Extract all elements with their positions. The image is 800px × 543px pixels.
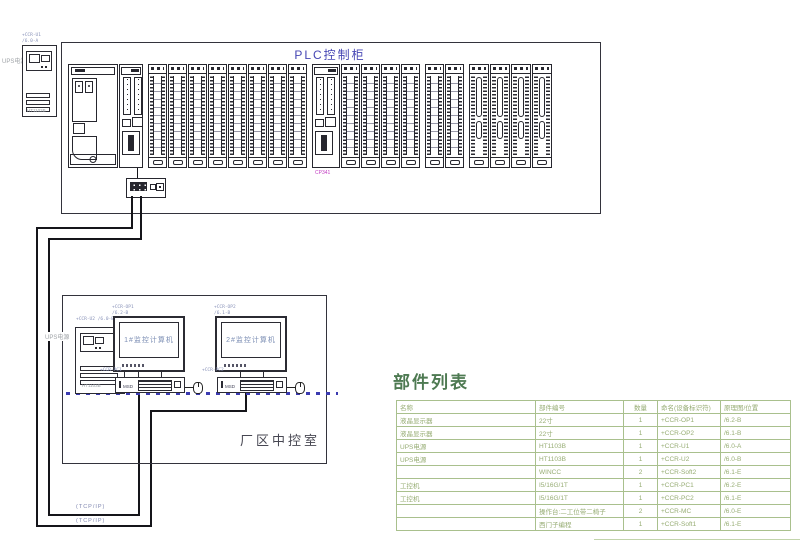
table-cell: 2 [624, 466, 658, 479]
monitor-2: 2#监控计算机 [215, 316, 287, 372]
psu-bottom-strip [70, 154, 116, 165]
monitor-1-name: 1#监控计算机 [124, 335, 174, 345]
rack-gap [421, 64, 424, 168]
table-cell: 22寸 [536, 414, 624, 427]
table-cell: +CCR-MC [658, 505, 721, 518]
io-module [361, 64, 380, 168]
module-terminals [169, 74, 186, 157]
network-connector [126, 178, 166, 198]
cpu-drop-line [137, 168, 138, 178]
psu-module [68, 64, 118, 168]
ups-room-label: UPS电源 [45, 332, 69, 341]
module-footer [289, 157, 306, 167]
mouse-1-icon [193, 382, 203, 394]
pc-led [221, 381, 223, 388]
cpu-slots [316, 77, 335, 115]
table-row: WINCC2+CCR-Soft2/6.1-E [397, 466, 791, 479]
an-module [511, 64, 531, 168]
table-cell: 1 [624, 414, 658, 427]
module-terminals [249, 74, 266, 157]
table-cell: I5/16G/1T [536, 492, 624, 505]
ups-main-model: HT1103B [27, 108, 46, 113]
module-footer [189, 157, 206, 167]
mouse-2-wire [287, 387, 295, 388]
table-row: UPS电源HT1103B1+CCR-U1/6.0-A [397, 440, 791, 453]
cpu-module [119, 64, 143, 168]
ups-display-panel [26, 51, 52, 71]
cable-inner-seg [48, 238, 142, 240]
module-terminals [470, 74, 488, 157]
table-cell: 1 [624, 492, 658, 505]
table-cell: 2 [624, 505, 658, 518]
rack-gap [465, 64, 468, 168]
cpu-square [315, 119, 324, 127]
io-module [381, 64, 400, 168]
ups-room-model: HT1103B [82, 383, 101, 388]
pc-port [276, 381, 283, 388]
ups-main-annotation: +CCR-U1 /6.0-A [22, 33, 41, 44]
table-header-cell: 数量 [624, 401, 658, 414]
table-cell [397, 466, 536, 479]
module-terminals [229, 74, 246, 157]
table-cell [397, 505, 536, 518]
table-header-cell: 原理图/位置 [721, 401, 791, 414]
table-cell: 操作台:二工位带二椅子 [536, 505, 624, 518]
module-header [269, 65, 286, 74]
pc-port [174, 381, 181, 388]
module-terminals [289, 74, 306, 157]
table-cell: /6.1-B [721, 427, 791, 440]
cable-outer-seg [131, 196, 133, 228]
pc-led [119, 381, 121, 388]
module-header [249, 65, 266, 74]
module-footer [382, 157, 399, 167]
module-terminals [491, 74, 509, 157]
module-header [229, 65, 246, 74]
io-module [425, 64, 444, 168]
table-cell: +CCR-OP1 [658, 414, 721, 427]
module-header [402, 65, 419, 74]
monitor-1-tag: +CCR-OP1 [112, 305, 134, 310]
cp-module: CP341 [312, 64, 340, 168]
table-cell: /6.0-A [721, 440, 791, 453]
ups-room-loc: /6.0-B [98, 317, 114, 322]
module-terminals [209, 74, 226, 157]
table-cell: 22寸 [536, 427, 624, 440]
plc-rack: CP341 [68, 64, 553, 168]
an-module [490, 64, 510, 168]
module-footer [209, 157, 226, 167]
module-footer [269, 157, 286, 167]
table-cell: +CCR-Soft1 [658, 518, 721, 531]
an-module [469, 64, 489, 168]
io-module [341, 64, 360, 168]
tcpip-label-1: (TCP/IP) [76, 504, 105, 510]
table-cell [397, 518, 536, 531]
ups-room-tag: +CCR-U2 [76, 317, 95, 322]
table-cell: /6.0-B [721, 453, 791, 466]
module-header [289, 65, 306, 74]
cpu-square [122, 119, 131, 127]
module-header [342, 65, 359, 74]
io-module [148, 64, 167, 168]
io-module [268, 64, 287, 168]
monitor-2-tag: +CCR-OP2 [214, 305, 236, 310]
module-header [382, 65, 399, 74]
module-header [533, 65, 551, 74]
table-cell: 西门子编程 [536, 518, 624, 531]
table-header-cell: 命名(设备标识符) [658, 401, 721, 414]
rack-gap [308, 64, 311, 168]
an-module [532, 64, 552, 168]
module-footer [169, 157, 186, 167]
pc-2: MSD [217, 377, 287, 393]
module-footer [533, 157, 551, 167]
table-header-cell: 部件编号 [536, 401, 624, 414]
table-cell: 1 [624, 518, 658, 531]
cpu-square [325, 117, 336, 127]
table-row: 液晶显示器22寸1+CCR-OP2/6.1-B [397, 427, 791, 440]
module-terminals [362, 74, 379, 157]
tcpip-label-2: (TCP/IP) [76, 518, 105, 524]
cp-module-label: CP341 [315, 170, 330, 176]
table-cell: HT1103B [536, 440, 624, 453]
module-terminals [512, 74, 530, 157]
module-footer [342, 157, 359, 167]
table-cell: +CCR-U2 [658, 453, 721, 466]
io-module [168, 64, 187, 168]
module-footer [402, 157, 419, 167]
table-row: 液晶显示器22寸1+CCR-OP1/6.2-B [397, 414, 791, 427]
table-cell: UPS电源 [397, 453, 536, 466]
table-cell: /6.2-B [721, 414, 791, 427]
cpu-slots [123, 77, 142, 115]
table-cell: HT1103B [536, 453, 624, 466]
module-terminals [269, 74, 286, 157]
cpu-connector [122, 131, 140, 155]
module-header [362, 65, 379, 74]
table-row: UPS电源HT1103B1+CCR-U2/6.0-B [397, 453, 791, 466]
table-cell: /6.1-E [721, 492, 791, 505]
table-cell: +CCR-PC1 [658, 479, 721, 492]
table-cell: /6.1-E [721, 466, 791, 479]
cable-outer-seg [36, 227, 38, 527]
io-module [228, 64, 247, 168]
ups-main-loc: /6.0-A [22, 39, 38, 44]
pc-badge: MSD [123, 384, 133, 389]
table-row: 西门子编程1+CCR-Soft1/6.1-E [397, 518, 791, 531]
drawing-canvas: PLC控制柜 CP341 +CCR-U1 /6.0-A UPS电源 HT1103… [0, 0, 800, 543]
cpu-square [132, 117, 143, 127]
table-cell: WINCC [536, 466, 624, 479]
monitor-1: 1#监控计算机 [113, 316, 185, 372]
module-header [426, 65, 443, 74]
module-header [470, 65, 488, 74]
psu-square [73, 123, 85, 134]
pc-1: MSD [115, 377, 185, 393]
table-cell: UPS电源 [397, 440, 536, 453]
io-module [188, 64, 207, 168]
table-cell: 工控机 [397, 492, 536, 505]
cable-inner-seg [48, 238, 50, 516]
ups-display-panel [80, 333, 115, 352]
psu-top-strip [71, 67, 115, 75]
module-terminals [342, 74, 359, 157]
pc-2-annotation: +CCR-PC2 [202, 368, 224, 374]
module-footer [446, 157, 463, 167]
cable-outer-seg [36, 227, 133, 229]
module-terminals [426, 74, 443, 157]
cable-outer-seg [36, 525, 152, 527]
module-terminals [446, 74, 463, 157]
pc-badge: MSD [225, 384, 235, 389]
psu-switch-unit [72, 78, 97, 122]
monitor-vents [122, 364, 144, 367]
io-module [248, 64, 267, 168]
table-cell: +CCR-U1 [658, 440, 721, 453]
module-header [149, 65, 166, 74]
monitor-1-screen: 1#监控计算机 [119, 322, 179, 358]
cable-inner-seg [140, 196, 142, 240]
monitor-1-annotation: +CCR-OP1 /6.2-B [112, 305, 134, 316]
connector-pin-pad [130, 182, 147, 191]
cpu-header [121, 67, 141, 75]
parts-table: 名称部件编号数量命名(设备标识符)原理图/位置 液晶显示器22寸1+CCR-OP… [396, 400, 791, 531]
module-terminals [402, 74, 419, 157]
table-row: 工控机I5/16G/1T1+CCR-PC1/6.2-E [397, 479, 791, 492]
table-cell: 液晶显示器 [397, 414, 536, 427]
module-header [491, 65, 509, 74]
table-cell: 1 [624, 440, 658, 453]
table-cell: /6.1-E [721, 518, 791, 531]
module-footer [491, 157, 509, 167]
module-terminals [382, 74, 399, 157]
monitor-2-screen: 2#监控计算机 [221, 322, 281, 358]
module-header [446, 65, 463, 74]
control-room-label: 厂区中控室 [240, 430, 320, 449]
table-cell: 工控机 [397, 479, 536, 492]
table-cell: 1 [624, 453, 658, 466]
module-footer [470, 157, 488, 167]
monitor-2-name: 2#监控计算机 [226, 335, 276, 345]
pc-2-tag: +CCR-PC2 [202, 368, 224, 373]
ups-main: HT1103B [22, 45, 57, 117]
monitor-2-loc: /6.1-B [214, 311, 230, 316]
ups-main-tag: +CCR-U1 [22, 33, 41, 38]
parts-list-title: 部件列表 [393, 368, 469, 393]
mouse-1-wire [185, 387, 193, 388]
table-header-cell: 名称 [397, 401, 536, 414]
table-cell: +CCR-OP2 [658, 427, 721, 440]
connector-switch-large [156, 183, 164, 191]
module-header [169, 65, 186, 74]
cpu-connector [315, 131, 333, 155]
table-row: 操作台:二工位带二椅子2+CCR-MC/6.0-E [397, 505, 791, 518]
module-footer [426, 157, 443, 167]
io-module [445, 64, 464, 168]
module-footer [229, 157, 246, 167]
io-module [208, 64, 227, 168]
table-cell: I5/16G/1T [536, 479, 624, 492]
pc-1-tag: +CCR-PC1 [100, 368, 122, 373]
module-footer [149, 157, 166, 167]
module-terminals [189, 74, 206, 157]
io-module [401, 64, 420, 168]
table-cell: /6.0-E [721, 505, 791, 518]
module-footer [362, 157, 379, 167]
cable-inner-seg [48, 514, 140, 516]
monitor-vents [224, 364, 246, 367]
plc-cabinet-title: PLC控制柜 [61, 46, 599, 63]
rack-gap [144, 64, 147, 168]
ups-room-annotation: +CCR-U2 /6.0-B [76, 317, 114, 323]
pc-drive [240, 380, 274, 391]
monitor-2-annotation: +CCR-OP2 /6.1-B [214, 305, 236, 316]
cpu-header [314, 67, 338, 75]
table-cell: 1 [624, 427, 658, 440]
table-row: 工控机I5/16G/1T1+CCR-PC2/6.1-E [397, 492, 791, 505]
module-header [189, 65, 206, 74]
table-cell: 液晶显示器 [397, 427, 536, 440]
table-cell: +CCR-Soft2 [658, 466, 721, 479]
mouse-2-icon [295, 382, 305, 394]
io-module [288, 64, 307, 168]
module-footer [249, 157, 266, 167]
module-header [512, 65, 530, 74]
table-cell: 1 [624, 479, 658, 492]
pc-1-annotation: +CCR-PC1 [100, 368, 122, 374]
table-cell: +CCR-PC2 [658, 492, 721, 505]
monitor-1-loc: /6.2-B [112, 311, 128, 316]
module-terminals [533, 74, 551, 157]
frame-line [594, 539, 800, 540]
module-terminals [149, 74, 166, 157]
module-header [209, 65, 226, 74]
module-footer [512, 157, 530, 167]
pc-drive [138, 380, 172, 391]
table-cell: /6.2-E [721, 479, 791, 492]
parts-table-header-row: 名称部件编号数量命名(设备标识符)原理图/位置 [397, 401, 791, 414]
